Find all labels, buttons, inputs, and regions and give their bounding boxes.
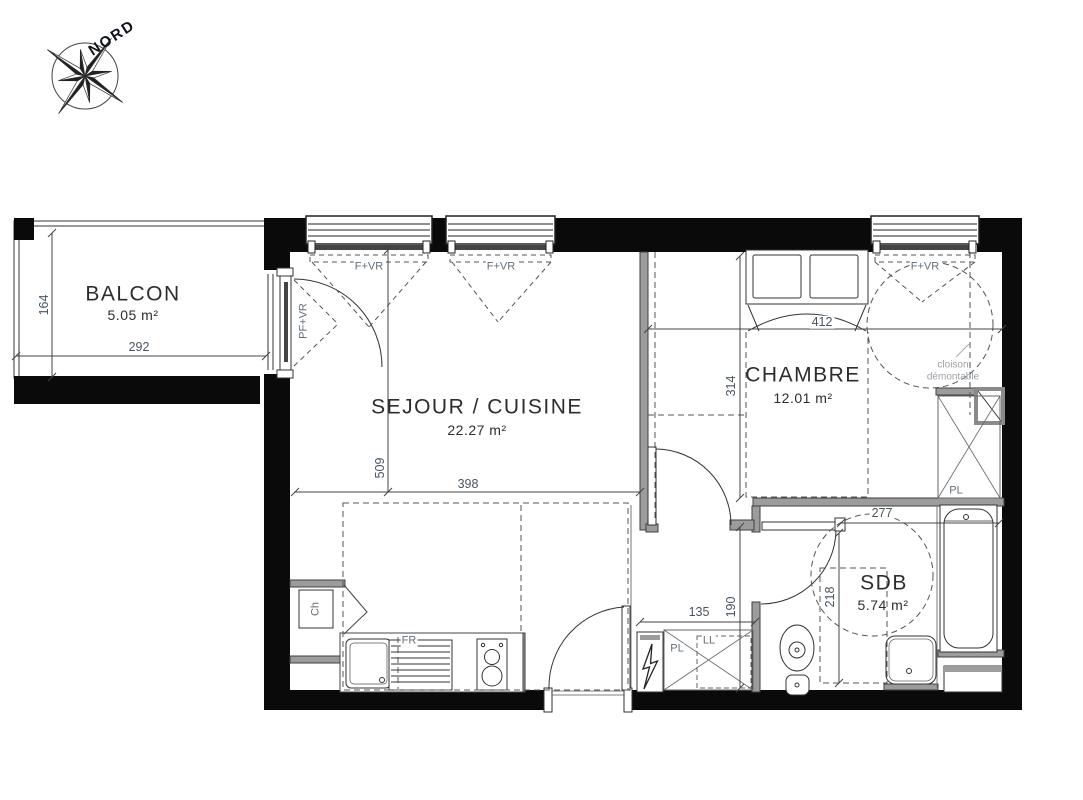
fridge-label: FR [401,636,418,647]
hob [477,639,507,690]
bedroom-closet [938,396,1000,498]
floor-plan: NORD BALCON 5.05 m² SEJOUR / CUISINE 22.… [0,0,1083,800]
dim-sdb-depth: 218 [824,585,837,610]
room-label-sejour-cuisine: SEJOUR / CUISINE [371,397,583,418]
dim-entry-width: 135 [687,606,712,619]
dashed-zones [343,252,993,690]
washbasin [886,636,936,684]
bathtub [940,505,997,652]
dim-entry-depth: 190 [725,595,738,620]
balcony-door [262,268,382,378]
toilet [780,625,814,695]
entrance-door [544,606,632,712]
dim-sejour-width: 398 [456,478,481,491]
room-label-chambre: CHAMBRE [745,365,861,386]
room-area-sdb: 5.74 m² [858,598,909,612]
washer-label: LL [702,636,716,647]
removable-partition-note: cloison démontable [920,360,986,383]
entry-closet-label: PL [669,644,684,655]
window-label-2: F+VR [486,262,516,273]
partition-leader-line [956,344,969,357]
window-label-1: F+VR [354,262,384,273]
window-3 [871,216,979,253]
dim-chambre-width: 412 [810,316,835,329]
room-label-sdb: SDB [860,573,908,594]
window-2 [446,216,555,253]
window-1 [306,216,432,253]
technical-shaft [976,389,1003,423]
dim-chambre-depth: 314 [725,374,738,399]
dim-balcon-width: 292 [127,341,152,354]
compass-rose [47,38,122,113]
bedroom-closet-label: PL [948,486,963,497]
bedroom-door [648,447,731,525]
kitchen-sink [346,639,391,688]
dim-balcon-depth: 164 [38,293,51,318]
dim-sejour-depth: 509 [374,456,387,481]
room-area-sejour-cuisine: 22.27 m² [447,423,506,437]
room-area-balcon: 5.05 m² [108,308,159,322]
boiler-label: Ch [311,601,322,617]
bathroom-step [944,666,1002,692]
room-area-chambre: 12.01 m² [773,391,832,405]
balcony-door-label: PF+VR [299,302,310,340]
room-label-balcon: BALCON [85,284,180,305]
interior-walls [290,252,1004,692]
window-label-3: F+VR [910,262,940,273]
dim-sdb-width: 277 [870,507,895,520]
electrical-panel [637,632,663,692]
